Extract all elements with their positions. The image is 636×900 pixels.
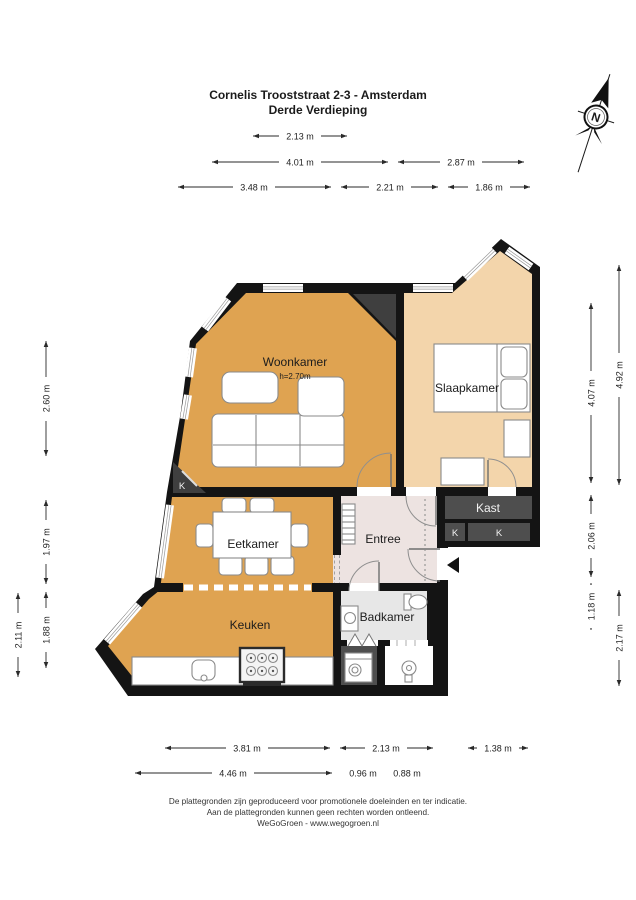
dim-left-4: 2.11 m bbox=[12, 593, 24, 677]
svg-text:1.18 m: 1.18 m bbox=[587, 593, 597, 621]
svg-text:4.46 m: 4.46 m bbox=[219, 769, 247, 779]
svg-text:4.07 m: 4.07 m bbox=[587, 379, 597, 407]
window-woonkamer-left1 bbox=[189, 348, 193, 377]
plan: Woonkamer h=2.70m Slaapkamer Eetkamer Ke… bbox=[95, 239, 540, 696]
floorplan-page: Cornelis Trooststraat 2-3 - Amsterdam De… bbox=[0, 0, 636, 900]
sink bbox=[192, 660, 215, 681]
washbasin bbox=[341, 606, 358, 631]
bed bbox=[434, 344, 530, 412]
svg-text:2.60 m: 2.60 m bbox=[42, 385, 52, 413]
dim-bottom-4: 4.46 m bbox=[135, 767, 332, 779]
svg-text:2.17 m: 2.17 m bbox=[615, 624, 625, 652]
page-title: Cornelis Trooststraat 2-3 - Amsterdam bbox=[209, 88, 427, 102]
svg-text:1.38 m: 1.38 m bbox=[484, 744, 512, 754]
label-entree: Entree bbox=[365, 532, 401, 546]
label-woonkamer: Woonkamer bbox=[263, 355, 327, 369]
svg-text:4.92 m: 4.92 m bbox=[615, 361, 625, 389]
label-badkamer: Badkamer bbox=[360, 610, 415, 624]
svg-text:0.96 m: 0.96 m bbox=[349, 769, 377, 779]
dim-top-2: 4.01 m bbox=[212, 156, 388, 168]
wall-stub-left bbox=[157, 583, 183, 592]
dim-top-3: 2.87 m bbox=[398, 156, 524, 168]
label-woonkamer-height: h=2.70m bbox=[279, 372, 311, 381]
label-kast: Kast bbox=[476, 501, 501, 515]
dim-top-1: 2.13 m bbox=[253, 130, 347, 142]
dim-bottom-3: 1.38 m bbox=[468, 742, 528, 754]
svg-text:1.86 m: 1.86 m bbox=[475, 183, 503, 193]
radiator bbox=[342, 504, 355, 544]
dim-bottom-5: 0.96 m bbox=[342, 767, 384, 779]
svg-text:2.21 m: 2.21 m bbox=[376, 183, 404, 193]
dim-top-4: 3.48 m bbox=[178, 181, 331, 193]
dim-bottom-2: 2.13 m bbox=[340, 742, 433, 754]
svg-text:1.88 m: 1.88 m bbox=[42, 616, 52, 644]
entrance-arrow-icon bbox=[447, 557, 459, 573]
dim-right-2: 4.07 m bbox=[585, 303, 597, 483]
window-woonkamer-left2 bbox=[184, 395, 188, 419]
dim-left-2: 1.97 m bbox=[40, 500, 52, 584]
footer-disclaimer-1: De plattegronden zijn geproduceerd voor … bbox=[169, 797, 467, 806]
dim-right-1: 4.92 m bbox=[613, 265, 625, 485]
svg-text:3.81 m: 3.81 m bbox=[233, 744, 261, 754]
svg-text:2.87 m: 2.87 m bbox=[447, 158, 475, 168]
svg-text:1.97 m: 1.97 m bbox=[42, 528, 52, 556]
label-closet-corner: K bbox=[179, 481, 186, 492]
footer: De plattegronden zijn geproduceerd voor … bbox=[169, 797, 467, 828]
label-keuken: Keuken bbox=[230, 618, 271, 632]
label-slaapkamer: Slaapkamer bbox=[435, 381, 499, 395]
floorplan-svg: Cornelis Trooststraat 2-3 - Amsterdam De… bbox=[0, 0, 636, 900]
footer-credit: WeGoGroen - www.wegogroen.nl bbox=[257, 819, 379, 828]
svg-text:2.13 m: 2.13 m bbox=[286, 132, 314, 142]
open-passage-entree bbox=[333, 555, 341, 583]
stove bbox=[240, 648, 284, 686]
dresser bbox=[441, 458, 484, 485]
svg-text:2.06 m: 2.06 m bbox=[587, 522, 597, 550]
dim-bottom-1: 3.81 m bbox=[165, 742, 330, 754]
wall-stub-right bbox=[312, 583, 333, 592]
footer-disclaimer-2: Aan de plattegronden kunnen geen rechten… bbox=[207, 808, 430, 817]
toilet bbox=[404, 594, 427, 610]
svg-text:2.11 m: 2.11 m bbox=[14, 622, 24, 649]
header: Cornelis Trooststraat 2-3 - Amsterdam De… bbox=[209, 88, 427, 117]
dim-right-3: 2.06 m bbox=[585, 495, 597, 577]
svg-text:4.01 m: 4.01 m bbox=[286, 158, 314, 168]
dim-right-4: 1.18 m bbox=[585, 583, 597, 630]
nightstand bbox=[504, 420, 530, 457]
label-eetkamer: Eetkamer bbox=[227, 537, 278, 551]
svg-text:0.88 m: 0.88 m bbox=[393, 769, 421, 779]
label-closet-k1: K bbox=[452, 528, 459, 539]
dim-right-5: 2.17 m bbox=[613, 590, 625, 686]
door-boilercloset bbox=[390, 640, 428, 646]
svg-text:3.48 m: 3.48 m bbox=[240, 183, 268, 193]
dim-bottom-6: 0.88 m bbox=[386, 767, 428, 779]
dim-top-6: 1.86 m bbox=[448, 181, 530, 193]
coffee-table bbox=[222, 372, 278, 403]
label-closet-k2: K bbox=[496, 528, 503, 539]
dim-top-5: 2.21 m bbox=[341, 181, 438, 193]
dim-left-3: 1.88 m bbox=[40, 592, 52, 668]
compass-north-icon: N bbox=[560, 68, 628, 178]
washing-machine bbox=[345, 653, 372, 682]
dim-left-1: 2.60 m bbox=[40, 341, 52, 456]
svg-text:2.13 m: 2.13 m bbox=[372, 744, 400, 754]
page-subtitle: Derde Verdieping bbox=[269, 103, 368, 117]
